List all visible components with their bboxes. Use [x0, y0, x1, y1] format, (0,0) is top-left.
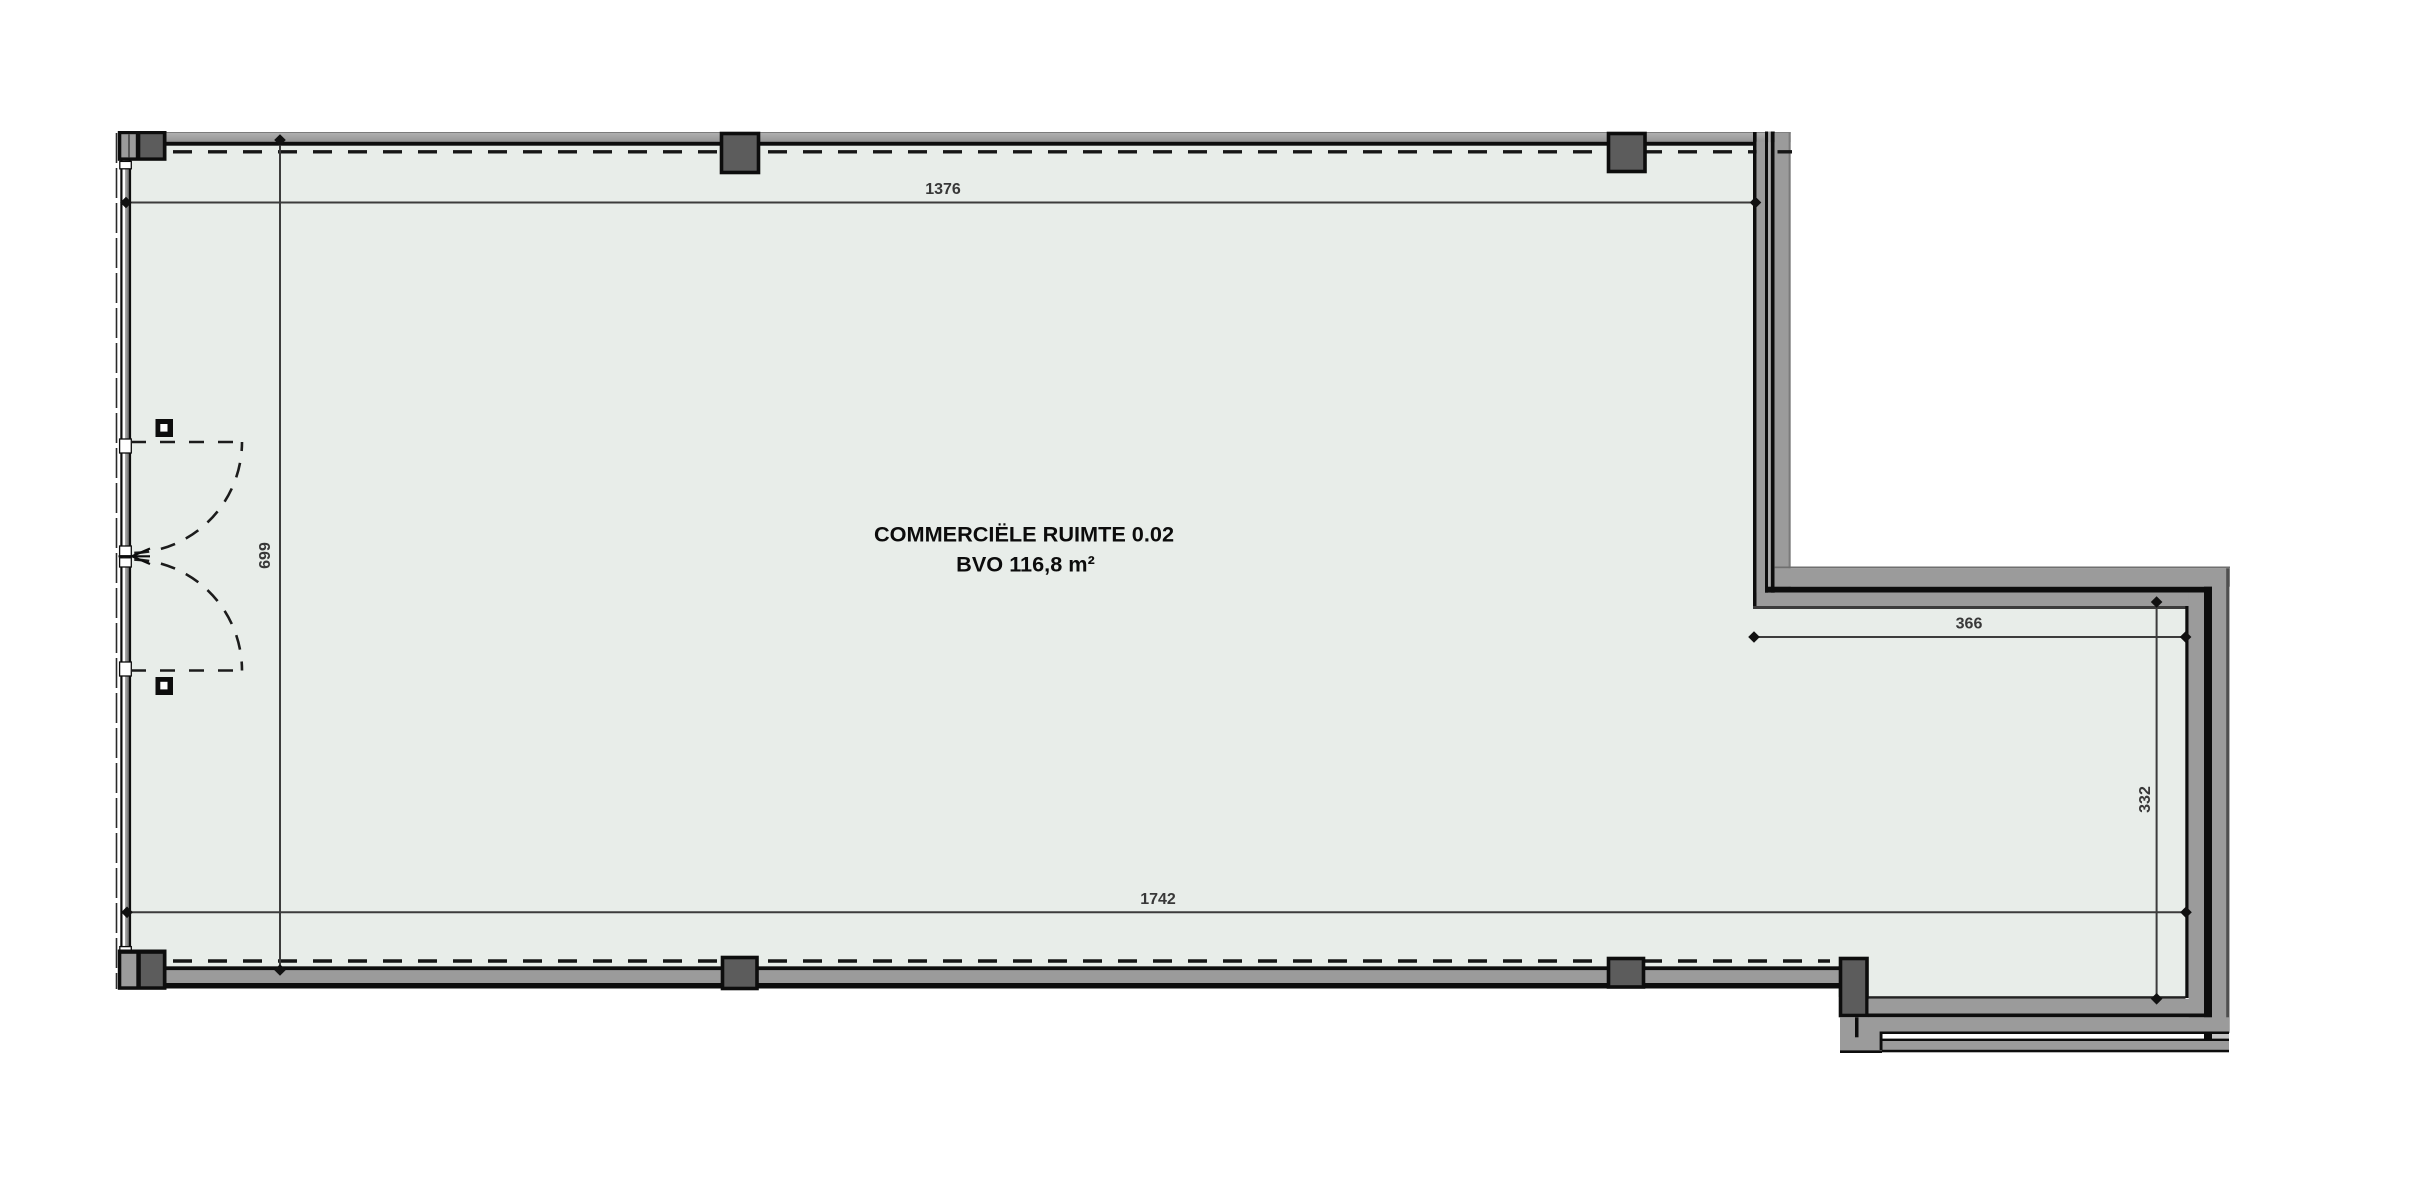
svg-text:366: 366 — [1956, 616, 1983, 633]
svg-text:1376: 1376 — [925, 181, 961, 198]
svg-text:COMMERCIËLE RUIMTE 0.02: COMMERCIËLE RUIMTE 0.02 — [874, 522, 1174, 547]
svg-text:BVO 116,8 m²: BVO 116,8 m² — [956, 552, 1095, 577]
svg-text:332: 332 — [2137, 786, 2154, 813]
svg-text:699: 699 — [257, 542, 274, 569]
svg-text:1742: 1742 — [1140, 891, 1176, 908]
